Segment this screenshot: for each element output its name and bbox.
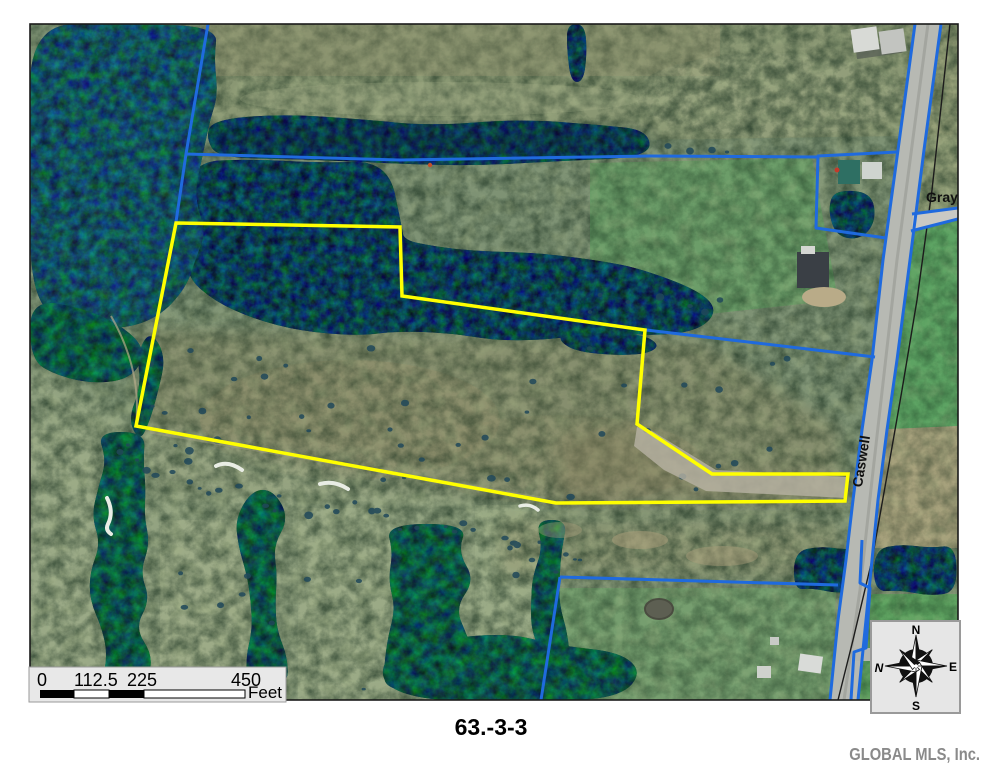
svg-text:N: N bbox=[912, 623, 921, 637]
svg-text:112.5: 112.5 bbox=[74, 670, 118, 690]
svg-text:63.-3-3: 63.-3-3 bbox=[455, 714, 528, 740]
svg-text:Gray: Gray bbox=[926, 189, 958, 205]
svg-text:N: N bbox=[875, 661, 884, 675]
svg-text:GLOBAL MLS, Inc.: GLOBAL MLS, Inc. bbox=[849, 745, 980, 765]
svg-text:Feet: Feet bbox=[248, 683, 282, 702]
svg-text:225: 225 bbox=[127, 670, 157, 690]
svg-text:E: E bbox=[949, 660, 957, 674]
svg-text:0: 0 bbox=[37, 670, 47, 690]
svg-text:S: S bbox=[912, 699, 920, 713]
